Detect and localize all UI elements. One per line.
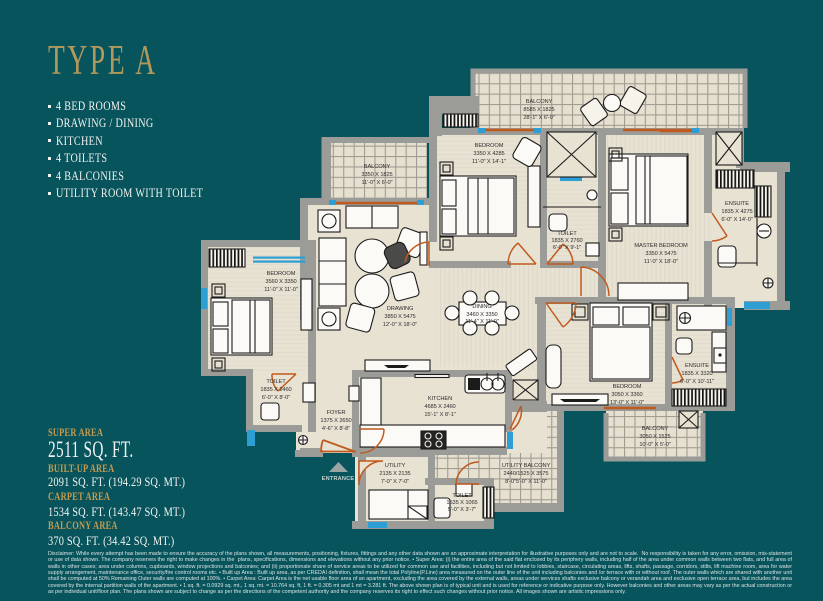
svg-text:ENSUITE: ENSUITE: [725, 201, 749, 207]
svg-text:3850 X 5475: 3850 X 5475: [384, 314, 415, 320]
svg-text:11'-0" X 14'-1": 11'-0" X 14'-1": [472, 159, 506, 165]
svg-text:11'-0" X 6'-0": 11'-0" X 6'-0": [362, 180, 393, 186]
svg-text:BALCONY: BALCONY: [642, 426, 669, 432]
svg-text:TOILET: TOILET: [266, 379, 286, 385]
svg-text:3350 X 1825: 3350 X 1825: [361, 172, 392, 178]
svg-text:BALCONY: BALCONY: [364, 164, 391, 170]
svg-text:3050 X 1525: 3050 X 1525: [639, 434, 670, 440]
svg-text:28'-1" X 6'-0": 28'-1" X 6'-0": [523, 115, 554, 121]
svg-text:TOILET: TOILET: [557, 231, 577, 237]
svg-text:BALCONY: BALCONY: [526, 99, 553, 105]
svg-text:ENTRANCE: ENTRANCE: [322, 476, 355, 482]
svg-text:BEDROOM: BEDROOM: [613, 384, 642, 390]
svg-text:8'-0"5'-0" X 11'-0": 8'-0"5'-0" X 11'-0": [505, 479, 547, 485]
svg-text:DINING: DINING: [472, 304, 491, 310]
svg-text:6'-0" X 9'-1": 6'-0" X 9'-1": [553, 245, 581, 251]
svg-text:12'-0" X 18'-0": 12'-0" X 18'-0": [383, 322, 418, 328]
svg-text:2440/1525 X 3575: 2440/1525 X 3575: [504, 471, 549, 477]
svg-text:13'-0" X 11'-0": 13'-0" X 11'-0": [610, 400, 644, 406]
svg-text:3050 X 3360: 3050 X 3360: [611, 392, 642, 398]
svg-text:ENSUITE: ENSUITE: [685, 363, 709, 369]
svg-text:1835 X 3320: 1835 X 3320: [681, 371, 712, 377]
svg-text:1835 X 2760: 1835 X 2760: [551, 238, 582, 244]
svg-text:10'-0" X 5'-0": 10'-0" X 5'-0": [639, 442, 670, 448]
svg-text:2135 X 2135: 2135 X 2135: [379, 471, 410, 477]
svg-text:3350 X 5475: 3350 X 5475: [645, 251, 676, 257]
svg-text:1835 X 4275: 1835 X 4275: [721, 209, 752, 215]
svg-text:1835 X 2460: 1835 X 2460: [260, 387, 291, 393]
svg-text:1375 X 2650: 1375 X 2650: [320, 418, 351, 424]
svg-text:FOYER: FOYER: [326, 410, 345, 416]
svg-text:7'-0" X 7'-0": 7'-0" X 7'-0": [381, 479, 409, 485]
svg-text:3350 X 4285: 3350 X 4285: [473, 151, 504, 157]
svg-text:KITCHEN: KITCHEN: [428, 396, 452, 402]
svg-text:4685 X 2460: 4685 X 2460: [424, 404, 455, 410]
svg-text:11'-4" X 11'-0": 11'-4" X 11'-0": [465, 319, 499, 325]
svg-text:11'-0" X 18'-0": 11'-0" X 18'-0": [644, 259, 678, 265]
svg-text:MASTER BEDROOM: MASTER BEDROOM: [634, 243, 688, 249]
svg-text:1535 X 1065: 1535 X 1065: [446, 500, 477, 506]
svg-text:6'-0" X 10'-11": 6'-0" X 10'-11": [680, 379, 714, 385]
svg-text:11'-0" X 11'-0": 11'-0" X 11'-0": [264, 287, 298, 293]
svg-text:3560 X 3350: 3560 X 3350: [265, 279, 296, 285]
svg-text:4'-6" X 8'-8": 4'-6" X 8'-8": [322, 426, 350, 432]
svg-text:TOILET: TOILET: [452, 493, 472, 499]
svg-text:6'-0" X 8'-0": 6'-0" X 8'-0": [262, 395, 290, 401]
svg-text:BEDROOM: BEDROOM: [475, 143, 504, 149]
svg-text:5'-0" X 3'-7": 5'-0" X 3'-7": [448, 507, 476, 513]
svg-text:3460 X 3350: 3460 X 3350: [466, 312, 497, 318]
svg-text:UTILITY: UTILITY: [385, 463, 406, 469]
svg-text:BEDROOM: BEDROOM: [267, 271, 296, 277]
svg-text:UTILITY BALCONY: UTILITY BALCONY: [502, 463, 551, 469]
svg-text:6'-0" X 14'-0": 6'-0" X 14'-0": [721, 217, 752, 223]
svg-text:DRAWING: DRAWING: [387, 306, 414, 312]
svg-text:15'-1" X 8'-1": 15'-1" X 8'-1": [424, 412, 455, 418]
svg-text:8585 X 1825: 8585 X 1825: [523, 107, 554, 113]
